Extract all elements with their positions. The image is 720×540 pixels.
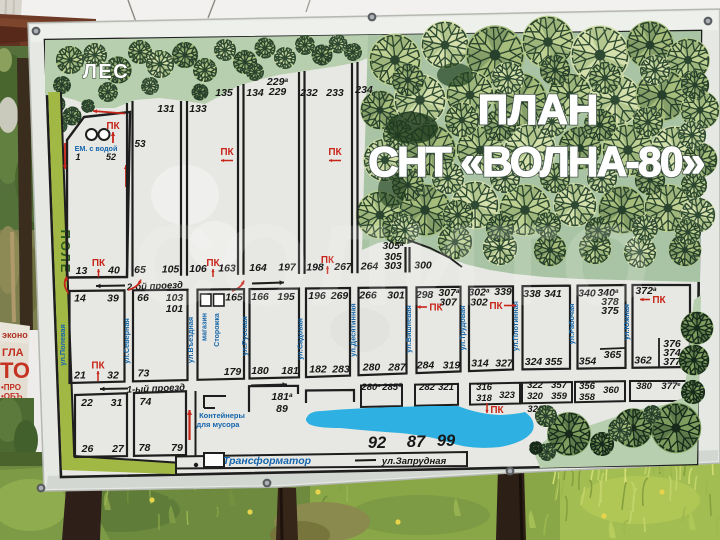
svg-text:Контейнеры: Контейнеры: [199, 411, 245, 420]
svg-text:320: 320: [527, 391, 544, 402]
svg-text:для мусора: для мусора: [197, 420, 241, 429]
svg-text:52: 52: [106, 152, 116, 162]
svg-text:380: 380: [636, 381, 653, 392]
svg-text:14: 14: [74, 293, 86, 305]
svg-text:эконо: эконо: [2, 330, 28, 340]
svg-text:181: 181: [281, 365, 299, 377]
svg-text:89: 89: [276, 403, 288, 415]
svg-text:74: 74: [140, 396, 152, 408]
svg-text:318: 318: [476, 393, 493, 404]
svg-text:21: 21: [73, 369, 86, 381]
svg-text:87: 87: [407, 433, 426, 451]
svg-text:232: 232: [299, 87, 318, 99]
svg-text:99: 99: [437, 432, 456, 450]
svg-text:1: 1: [75, 152, 80, 162]
svg-text:ЛЕС: ЛЕС: [83, 61, 129, 83]
svg-text:322: 322: [527, 380, 544, 391]
svg-text:27: 27: [111, 443, 125, 455]
svg-text:360: 360: [603, 385, 620, 396]
svg-text:354: 354: [579, 355, 597, 367]
svg-text:319: 319: [443, 359, 461, 371]
svg-text:233: 233: [325, 87, 344, 99]
svg-text:284: 284: [416, 359, 435, 371]
svg-text:26: 26: [81, 443, 94, 455]
svg-text:282: 282: [418, 382, 436, 393]
svg-text:39: 39: [107, 293, 119, 305]
svg-text:287: 287: [387, 361, 407, 373]
svg-text:134: 134: [246, 87, 264, 99]
svg-text:358: 358: [579, 392, 596, 403]
svg-text:359: 359: [551, 391, 568, 402]
svg-text:327: 327: [495, 357, 514, 369]
svg-text:ПЛАН: ПЛАН: [478, 86, 598, 133]
svg-text:ПК: ПК: [92, 258, 106, 269]
svg-text:СНТ «ВОЛНА-80»: СНТ «ВОЛНА-80»: [368, 138, 704, 185]
svg-text:53: 53: [134, 139, 146, 150]
svg-text:ПОЛЕ: ПОЛЕ: [58, 230, 73, 275]
svg-text:316: 316: [476, 382, 493, 393]
svg-text:•ПРО: •ПРО: [1, 383, 21, 392]
svg-text:ул.Запрудная: ул.Запрудная: [381, 456, 447, 467]
svg-text:ТО: ТО: [0, 358, 30, 383]
svg-text:355: 355: [545, 356, 563, 368]
svg-text:357: 357: [551, 380, 568, 391]
svg-text:182: 182: [309, 363, 327, 375]
svg-text:ПК: ПК: [220, 147, 234, 158]
svg-text:92: 92: [368, 434, 386, 452]
svg-text:314: 314: [471, 357, 489, 369]
svg-text:321: 321: [438, 382, 454, 393]
svg-text:Трансформатор: Трансформатор: [223, 455, 312, 467]
svg-text:280: 280: [362, 361, 381, 373]
svg-text:323: 323: [499, 390, 516, 401]
svg-text:229: 229: [268, 86, 287, 98]
svg-text:ул.Северная: ул.Северная: [122, 318, 131, 364]
svg-text:356: 356: [579, 381, 596, 392]
svg-text:179: 179: [224, 366, 242, 378]
svg-text:131: 131: [157, 103, 175, 115]
svg-text:135: 135: [215, 87, 233, 99]
svg-text:22: 22: [80, 397, 93, 409]
svg-text:79: 79: [171, 442, 183, 454]
svg-text:180: 180: [251, 365, 269, 377]
svg-text:362: 362: [634, 354, 652, 366]
svg-text:СОЛИТО: СОЛИТО: [134, 202, 657, 330]
svg-text:365: 365: [604, 349, 622, 361]
svg-text:40: 40: [107, 264, 120, 276]
svg-text:73: 73: [138, 368, 150, 380]
svg-text:283: 283: [331, 363, 350, 375]
svg-text:133: 133: [189, 103, 207, 115]
svg-text:32: 32: [107, 369, 119, 381]
svg-text:ПК: ПК: [328, 147, 342, 158]
svg-text:ПК: ПК: [490, 405, 504, 416]
svg-text:324: 324: [525, 356, 543, 368]
svg-text:234: 234: [354, 84, 373, 96]
svg-text:ПК: ПК: [106, 121, 120, 132]
svg-text:31: 31: [111, 397, 123, 409]
svg-text:ул.Полевая: ул.Полевая: [58, 324, 67, 365]
svg-text:78: 78: [139, 442, 151, 454]
svg-text:ПК: ПК: [91, 361, 105, 372]
svg-text:13: 13: [76, 265, 88, 277]
